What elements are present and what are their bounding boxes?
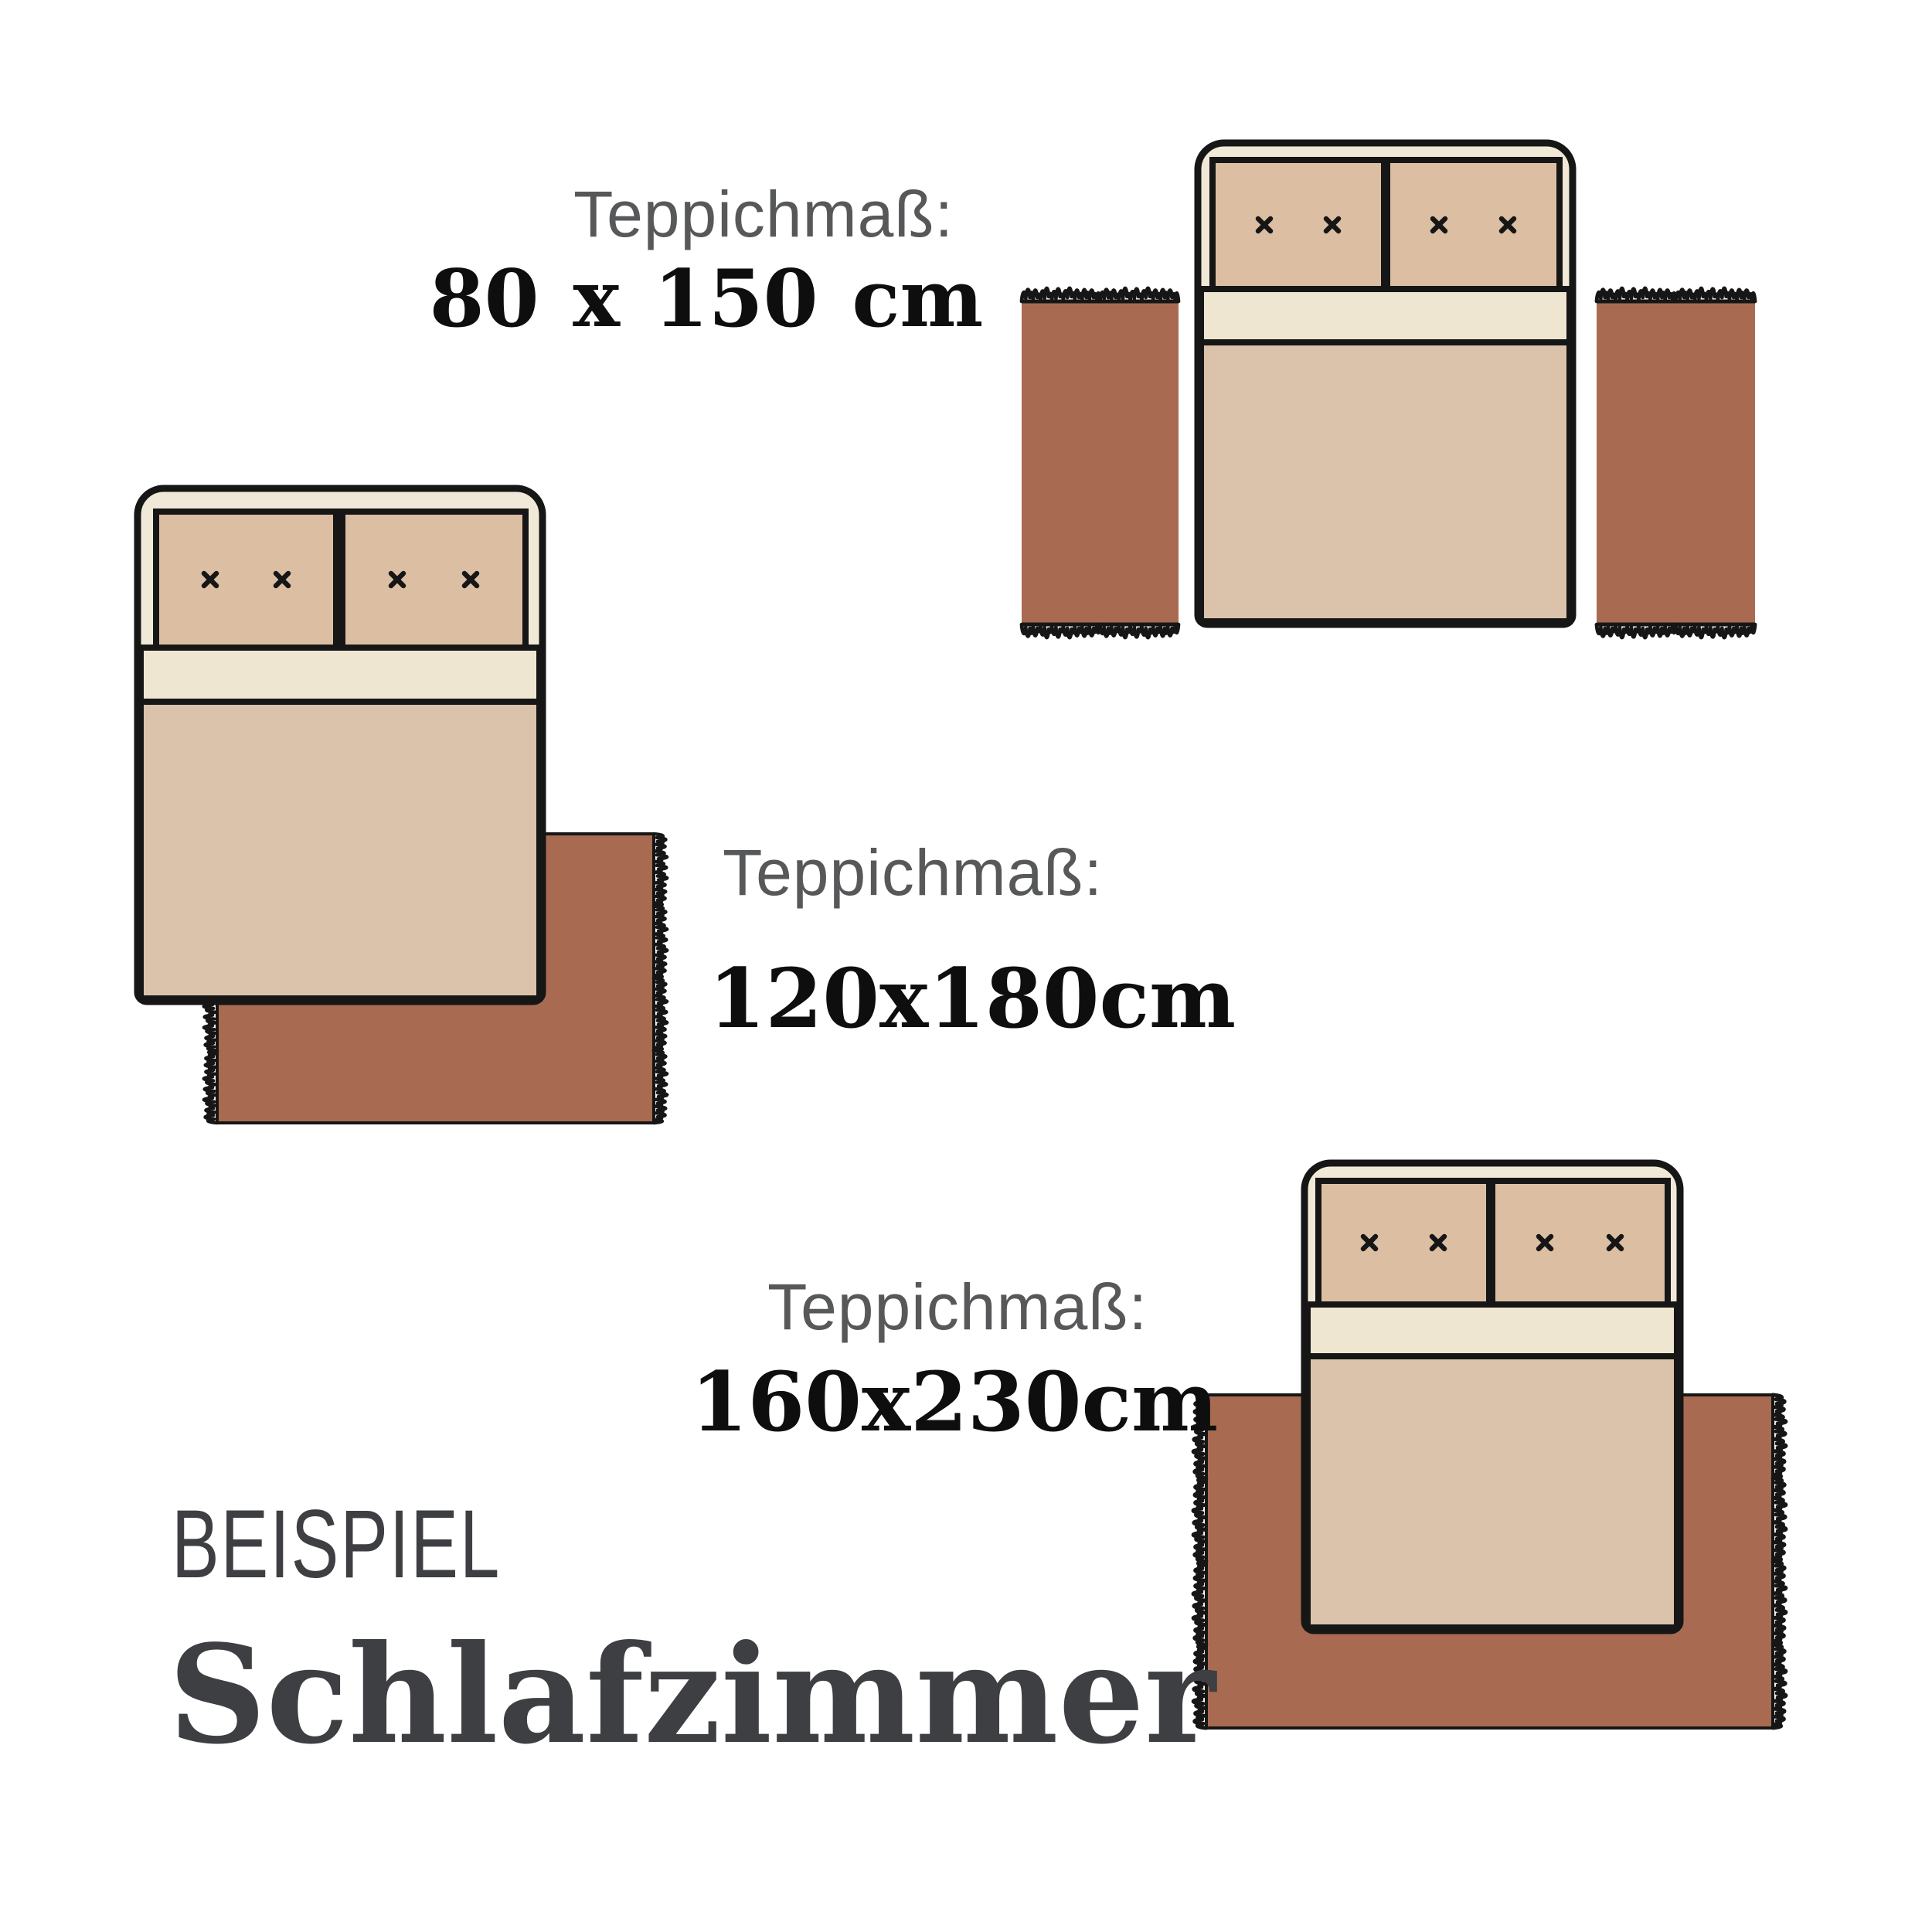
size-label-120x180: Teppichmaß: bbox=[723, 840, 1103, 905]
rug-size-guide-bedroom: Teppichmaß: 80 x 150 cm Teppichmaß: 120x… bbox=[0, 0, 1932, 1932]
bed-top-view bbox=[138, 488, 543, 1002]
rug-fringe-icon bbox=[1773, 1395, 1786, 1728]
rug bbox=[1597, 301, 1755, 624]
bed-top-view bbox=[1304, 1163, 1680, 1631]
rug-fringe-icon bbox=[1597, 288, 1755, 301]
runner-rug-left bbox=[1022, 288, 1179, 638]
rug bbox=[1022, 301, 1179, 624]
example-80x150-illustration bbox=[1022, 143, 1755, 638]
blanket bbox=[141, 702, 539, 998]
blanket bbox=[1201, 342, 1570, 621]
pillow-right bbox=[1387, 160, 1560, 289]
sheet-band bbox=[141, 648, 539, 702]
size-label-160x230: Teppichmaß: bbox=[767, 1274, 1148, 1339]
size-value-80x150: 80 x 150 cm bbox=[430, 260, 984, 338]
footer-title: Schlafzimmer bbox=[168, 1628, 1216, 1763]
pillow-right bbox=[342, 512, 526, 648]
rug-fringe-icon bbox=[1022, 288, 1179, 301]
pillow-right bbox=[1492, 1181, 1668, 1304]
pillow-left bbox=[1318, 1181, 1489, 1304]
sheet-band bbox=[1308, 1304, 1677, 1356]
sheet-band bbox=[1201, 289, 1570, 342]
blanket bbox=[1308, 1356, 1677, 1628]
bed-top-view bbox=[1198, 143, 1573, 624]
rug-fringe-icon bbox=[654, 834, 667, 1123]
pillow-left bbox=[1213, 160, 1384, 289]
rug-fringe-icon bbox=[1022, 624, 1179, 638]
runner-rug-right bbox=[1597, 288, 1755, 638]
example-160x230-illustration bbox=[1193, 1163, 1786, 1728]
rug-fringe-icon bbox=[1597, 624, 1755, 638]
size-value-120x180: 120x180cm bbox=[709, 957, 1236, 1039]
example-120x180-illustration bbox=[138, 488, 667, 1123]
footer-eyebrow: BEISPIEL bbox=[172, 1496, 501, 1593]
size-label-80x150: Teppichmaß: bbox=[573, 182, 954, 247]
size-value-160x230: 160x230cm bbox=[691, 1361, 1218, 1443]
pillow-left bbox=[156, 512, 336, 648]
